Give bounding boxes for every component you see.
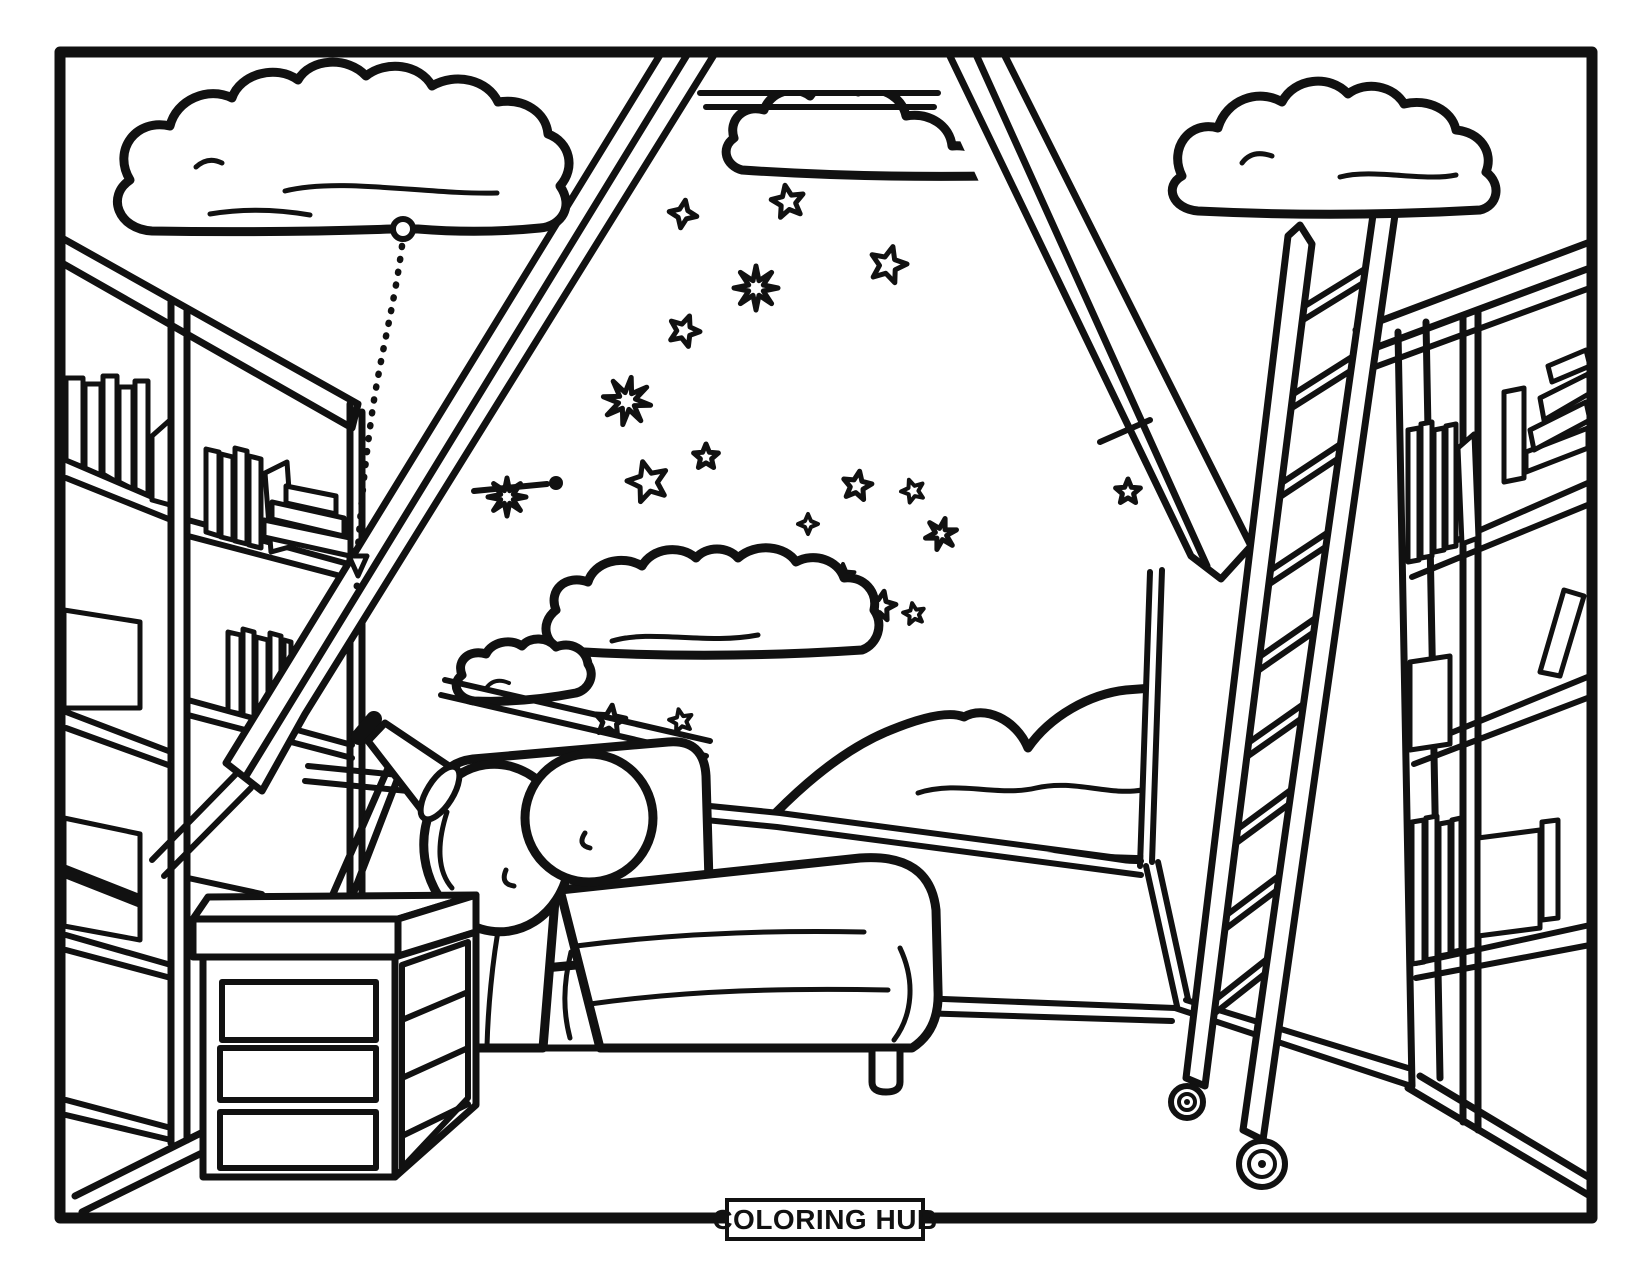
mattress — [560, 858, 938, 1048]
cloud-top-left — [117, 62, 569, 239]
shelf-bottom-edge — [75, 1132, 208, 1212]
brand-label: COLORING HUB — [712, 1204, 937, 1235]
storage-box — [1410, 656, 1450, 750]
star-icon — [798, 514, 818, 534]
cloud-window-small — [456, 639, 591, 701]
shooting-star-head — [549, 476, 563, 490]
shelf-middle-post — [171, 300, 187, 1143]
star-icon — [627, 462, 666, 502]
window-reveal-right — [1140, 570, 1162, 866]
ladder-rail-left — [1186, 225, 1312, 1086]
star-icon — [669, 200, 697, 228]
ladder-rail-right — [1243, 208, 1396, 1140]
shelf-bottom-edge — [1408, 1076, 1590, 1196]
wall-star-group — [1116, 479, 1141, 503]
pull-ring — [393, 219, 413, 239]
star-icon — [926, 519, 957, 550]
shooting-star-tail — [474, 484, 547, 491]
star-icon — [669, 709, 691, 732]
drawer-1 — [222, 982, 376, 1040]
star-icon — [872, 247, 907, 283]
ladder-wheel-small — [1171, 1086, 1203, 1118]
coloring-page: COLORING HUB — [0, 0, 1650, 1275]
shelf-boards — [66, 460, 171, 1140]
star-icon — [1116, 479, 1141, 503]
leaning-folder — [64, 818, 140, 940]
book-stack — [1504, 350, 1592, 482]
ladder-wheel-large — [1239, 1141, 1285, 1187]
star-icon — [901, 480, 923, 503]
brand-badge: COLORING HUB — [712, 1200, 937, 1239]
drawer-3 — [220, 1112, 376, 1168]
books — [1412, 816, 1558, 964]
attic-bedroom-line-art: COLORING HUB — [0, 0, 1650, 1275]
star-icon — [671, 316, 700, 346]
drawer-2 — [220, 1048, 376, 1100]
cloud-top-right — [1172, 81, 1496, 214]
bed-leg — [872, 1048, 900, 1092]
star-icon — [903, 603, 924, 624]
baseboard-behind-bed — [918, 998, 1175, 1021]
star-icon — [734, 266, 778, 310]
star-icon — [694, 444, 719, 468]
leaning-book — [1540, 590, 1584, 676]
nightstand — [193, 895, 476, 1177]
books — [1408, 422, 1478, 562]
nightstand-top-front — [193, 919, 398, 957]
ladder — [1171, 208, 1396, 1187]
star-icon — [771, 185, 803, 217]
star-icon — [844, 471, 872, 499]
books — [206, 448, 350, 556]
storage-box — [64, 610, 140, 708]
bookshelf-right — [1356, 242, 1592, 1196]
nightstand-side — [395, 932, 476, 1177]
attic-edge-right — [1146, 862, 1188, 1006]
attic-edge-left — [152, 772, 251, 876]
cloud-window-top — [726, 83, 994, 177]
pillow-right — [525, 754, 653, 882]
chain-bead — [354, 583, 361, 590]
star-icon — [603, 377, 650, 424]
window-frame-right-line — [974, 50, 1207, 566]
